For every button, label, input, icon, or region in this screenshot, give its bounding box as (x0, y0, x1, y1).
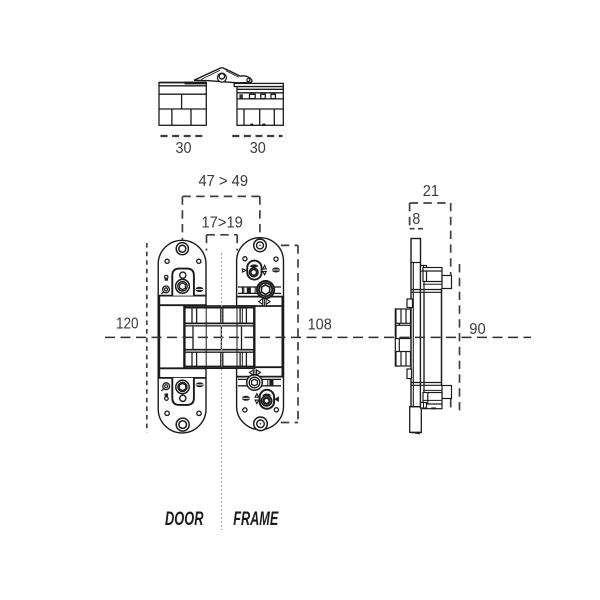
svg-text:90: 90 (469, 321, 485, 338)
svg-text:FRAME: FRAME (233, 509, 279, 530)
svg-text:DOOR: DOOR (165, 509, 204, 530)
svg-text:17>19: 17>19 (202, 215, 243, 232)
svg-text:120: 120 (116, 316, 139, 333)
svg-text:30: 30 (250, 140, 266, 157)
svg-text:47 > 49: 47 > 49 (199, 173, 249, 190)
svg-text:108: 108 (308, 317, 332, 334)
svg-text:30: 30 (176, 140, 192, 157)
svg-text:21: 21 (423, 183, 439, 200)
svg-text:8: 8 (412, 211, 420, 228)
